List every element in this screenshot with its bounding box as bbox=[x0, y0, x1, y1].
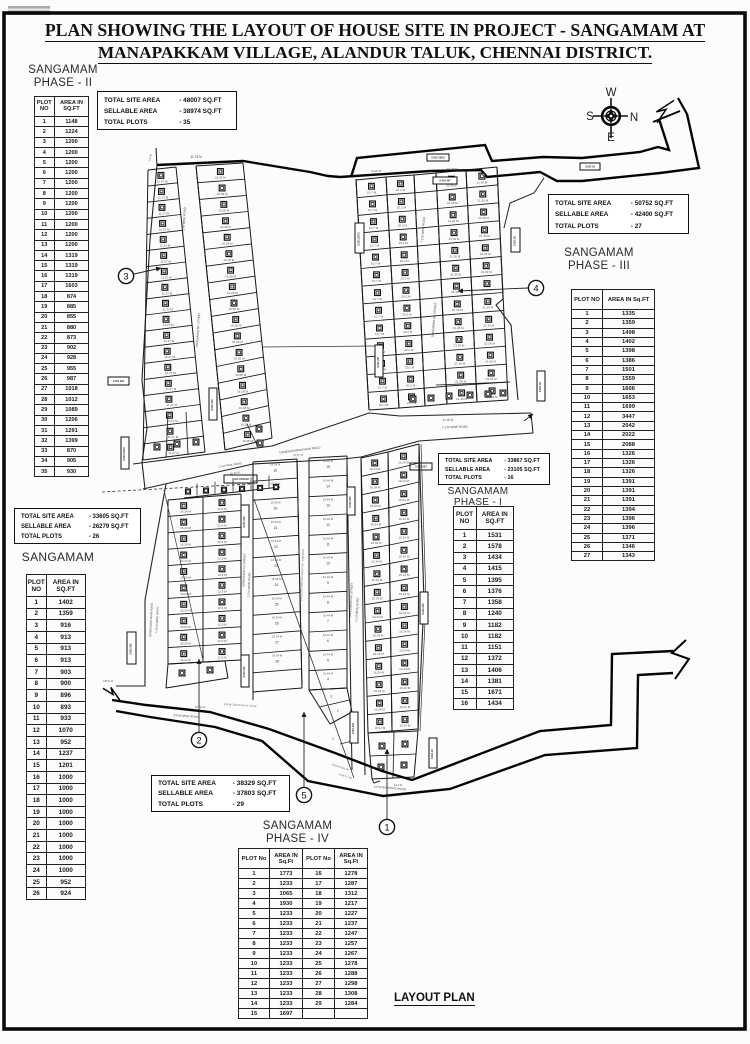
svg-text:11.27 M: 11.27 M bbox=[157, 180, 168, 184]
svg-text:16.34 M: 16.34 M bbox=[370, 504, 381, 508]
svg-text:16.34 M: 16.34 M bbox=[374, 689, 385, 693]
svg-text:16.24 M: 16.24 M bbox=[180, 576, 191, 580]
svg-text:16.44 M: 16.44 M bbox=[323, 536, 334, 540]
svg-text:11.27 M: 11.27 M bbox=[164, 355, 175, 359]
svg-text:12.9 M: 12.9 M bbox=[217, 573, 227, 577]
svg-text:16.34 M: 16.34 M bbox=[374, 707, 385, 711]
svg-text:11.27 M: 11.27 M bbox=[162, 291, 173, 295]
svg-text:4: 4 bbox=[327, 678, 329, 682]
svg-text:16.34 M: 16.34 M bbox=[371, 560, 382, 564]
svg-text:16.24 M: 16.24 M bbox=[400, 724, 411, 728]
svg-text:5.84 M 7.92 M SPLAY 7.91 M: 5.84 M 7.92 M SPLAY 7.91 M bbox=[224, 703, 257, 708]
svg-text:16.24 M: 16.24 M bbox=[399, 667, 410, 671]
svg-text:SANGAMAM 1st STREET: SANGAMAM 1st STREET bbox=[241, 553, 246, 587]
svg-text:11.27 M: 11.27 M bbox=[162, 307, 173, 311]
svg-text:20: 20 bbox=[274, 507, 278, 511]
svg-text:S.NO.264: S.NO.264 bbox=[113, 379, 125, 383]
svg-text:16.28 M: 16.28 M bbox=[218, 209, 229, 213]
svg-text:E: E bbox=[607, 132, 615, 144]
svg-text:16.44 M: 16.44 M bbox=[323, 652, 334, 656]
svg-text:16.34 M: 16.34 M bbox=[270, 482, 281, 486]
svg-text:10.7 M: 10.7 M bbox=[367, 190, 377, 194]
svg-text:3: 3 bbox=[123, 271, 128, 282]
svg-text:21.36 M: 21.36 M bbox=[448, 219, 459, 223]
svg-text:S.NO.263: S.NO.263 bbox=[242, 516, 246, 528]
svg-text:11.27 M: 11.27 M bbox=[164, 339, 175, 343]
svg-text:20.2 M: 20.2 M bbox=[396, 188, 406, 192]
svg-text:EXECUTED VIDE DOCUMENT NO - 13: EXECUTED VIDE DOCUMENT NO - 1366 03 02 bbox=[300, 548, 305, 601]
svg-text:10.7 M: 10.7 M bbox=[378, 385, 388, 389]
svg-text:16.34 M: 16.34 M bbox=[373, 670, 384, 674]
svg-text:1: 1 bbox=[384, 822, 389, 833]
svg-text:16.24 M: 16.24 M bbox=[180, 608, 191, 612]
svg-text:20.2 M: 20.2 M bbox=[399, 241, 409, 245]
svg-text:S.NO.267/1: S.NO.267/1 bbox=[357, 232, 361, 246]
svg-text:SANGAMAM 2nd STREET: SANGAMAM 2nd STREET bbox=[348, 582, 354, 617]
svg-text:S.NO.263: S.NO.263 bbox=[242, 666, 246, 678]
svg-text:7.2 M WIDE ROAD: 7.2 M WIDE ROAD bbox=[354, 597, 359, 622]
svg-text:21.36 M: 21.36 M bbox=[477, 198, 488, 202]
svg-text:16.24 M: 16.24 M bbox=[398, 460, 409, 464]
svg-text:S.NO 263: S.NO 263 bbox=[415, 465, 427, 469]
svg-text:12.9 M: 12.9 M bbox=[217, 523, 227, 527]
svg-text:SANGAMAM 4th STREET: SANGAMAM 4th STREET bbox=[430, 302, 437, 338]
svg-text:11.27 M: 11.27 M bbox=[159, 227, 170, 231]
svg-text:14: 14 bbox=[326, 484, 330, 488]
svg-text:S.NO.262: S.NO.262 bbox=[129, 643, 133, 655]
svg-text:12.9 M: 12.9 M bbox=[217, 639, 227, 643]
svg-text:16.24 M: 16.24 M bbox=[399, 648, 410, 652]
svg-text:16.34 M: 16.34 M bbox=[373, 633, 384, 637]
svg-text:11.27 M: 11.27 M bbox=[160, 243, 171, 247]
svg-text:S.NO.262/3: S.NO.262/3 bbox=[122, 447, 126, 461]
svg-text:S.NO.263: S.NO.263 bbox=[421, 603, 425, 615]
svg-text:16.24 M: 16.24 M bbox=[180, 526, 191, 530]
svg-text:16.34 M: 16.34 M bbox=[371, 541, 382, 545]
svg-text:21.36 M: 21.36 M bbox=[483, 324, 494, 328]
svg-text:12: 12 bbox=[326, 523, 330, 527]
svg-text:21.36 M: 21.36 M bbox=[449, 237, 460, 241]
svg-text:5: 5 bbox=[301, 790, 306, 801]
svg-text:16.28 M: 16.28 M bbox=[230, 324, 241, 328]
svg-text:16.44 M: 16.44 M bbox=[323, 672, 334, 676]
svg-text:S.NO 267: S.NO 267 bbox=[439, 179, 451, 183]
svg-text:16.28 M: 16.28 M bbox=[234, 357, 245, 361]
svg-text:20.2 M: 20.2 M bbox=[401, 277, 411, 281]
svg-text:21.36 M: 21.36 M bbox=[449, 255, 460, 259]
svg-text:21.36 M: 21.36 M bbox=[481, 270, 492, 274]
svg-text:S.NO.26: S.NO.26 bbox=[538, 382, 542, 393]
svg-text:21.36 M: 21.36 M bbox=[456, 397, 467, 401]
svg-text:10.7 M: 10.7 M bbox=[373, 297, 383, 301]
svg-text:12.9 M: 12.9 M bbox=[217, 623, 227, 627]
svg-text:3: 3 bbox=[330, 695, 332, 699]
svg-text:21.36 M: 21.36 M bbox=[453, 326, 464, 330]
svg-text:21.36 M: 21.36 M bbox=[485, 359, 496, 363]
svg-text:16.24 M: 16.24 M bbox=[399, 611, 410, 615]
svg-text:21: 21 bbox=[274, 526, 278, 530]
svg-text:21.36 M: 21.36 M bbox=[454, 344, 465, 348]
svg-text:16.28 M: 16.28 M bbox=[220, 225, 231, 229]
svg-text:1: 1 bbox=[332, 737, 334, 741]
svg-text:10.7 M: 10.7 M bbox=[369, 226, 379, 230]
svg-text:21.36 M: 21.36 M bbox=[486, 377, 497, 381]
svg-text:16.28 M: 16.28 M bbox=[215, 176, 226, 180]
svg-text:10.52 M SPLAY: 10.52 M SPLAY bbox=[331, 762, 350, 772]
svg-text:16.34 M: 16.34 M bbox=[370, 523, 381, 527]
svg-text:16.34 M: 16.34 M bbox=[372, 597, 383, 601]
svg-text:16.24 M: 16.24 M bbox=[180, 641, 191, 645]
svg-text:SANGAMAM MAIN ROAD: SANGAMAM MAIN ROAD bbox=[148, 603, 154, 637]
svg-text:11.27 M: 11.27 M bbox=[166, 403, 177, 407]
svg-text:16.44 M: 16.44 M bbox=[323, 633, 334, 637]
svg-text:16.34 M: 16.34 M bbox=[372, 615, 383, 619]
svg-text:16.44 M: 16.44 M bbox=[323, 517, 334, 521]
svg-text:73.20 M: 73.20 M bbox=[371, 169, 382, 173]
svg-text:16.28 M: 16.28 M bbox=[240, 422, 251, 426]
svg-text:21.36 M: 21.36 M bbox=[455, 379, 466, 383]
svg-text:16.28 M: 16.28 M bbox=[242, 439, 253, 443]
svg-text:7.2 M WIDE ROAD: 7.2 M WIDE ROAD bbox=[247, 573, 252, 598]
svg-text:10: 10 bbox=[326, 562, 330, 566]
svg-text:16.24 M: 16.24 M bbox=[398, 498, 409, 502]
svg-text:20.2 M: 20.2 M bbox=[398, 223, 408, 227]
svg-text:12.9 M: 12.9 M bbox=[217, 540, 227, 544]
svg-text:16.28 M: 16.28 M bbox=[235, 373, 246, 377]
svg-text:11.27 M: 11.27 M bbox=[165, 371, 176, 375]
svg-text:16.24 M: 16.24 M bbox=[180, 510, 191, 514]
svg-text:S.NO.263: S.NO.263 bbox=[348, 496, 352, 508]
svg-text:21.36 M: 21.36 M bbox=[450, 272, 461, 276]
svg-text:S.NO.263: S.NO.263 bbox=[210, 399, 214, 411]
svg-text:16.28 M: 16.28 M bbox=[239, 406, 250, 410]
svg-text:20.2 M: 20.2 M bbox=[404, 348, 414, 352]
svg-text:16.24 M: 16.24 M bbox=[398, 536, 409, 540]
svg-text:7.2 M WIDE ROAD: 7.2 M WIDE ROAD bbox=[420, 216, 426, 243]
svg-text:W: W bbox=[606, 87, 617, 99]
svg-text:21.36 M: 21.36 M bbox=[480, 252, 491, 256]
svg-text:3.0 M: 3.0 M bbox=[147, 153, 153, 161]
svg-text:12.9 M: 12.9 M bbox=[217, 507, 227, 511]
svg-text:20.2 M: 20.2 M bbox=[401, 295, 411, 299]
svg-text:16.44 M: 16.44 M bbox=[323, 498, 334, 502]
svg-text:11.27 M: 11.27 M bbox=[166, 387, 177, 391]
svg-text:S.NO.267: S.NO.267 bbox=[376, 356, 380, 368]
svg-text:16.34 M: 16.34 M bbox=[272, 654, 283, 658]
svg-text:16.44 M: 16.44 M bbox=[323, 575, 334, 579]
svg-text:16.44 M: 16.44 M bbox=[323, 594, 334, 598]
svg-text:S.NO.26: S.NO.26 bbox=[513, 236, 517, 247]
svg-text:16.28 M: 16.28 M bbox=[223, 258, 234, 262]
svg-text:16.34 M: 16.34 M bbox=[272, 635, 283, 639]
svg-text:34.28 M: 34.28 M bbox=[447, 167, 458, 171]
svg-text:20.2 M: 20.2 M bbox=[402, 312, 412, 316]
svg-text:S: S bbox=[586, 111, 594, 123]
svg-text:12.9 M: 12.9 M bbox=[217, 656, 227, 660]
svg-text:S.NO 266/2: S.NO 266/2 bbox=[431, 156, 445, 160]
svg-text:14 M 21 CM: 14 M 21 CM bbox=[338, 773, 352, 780]
svg-text:10.7 M: 10.7 M bbox=[379, 403, 389, 407]
svg-text:10.7 M: 10.7 M bbox=[374, 315, 384, 319]
svg-text:20.2 M: 20.2 M bbox=[397, 206, 407, 210]
svg-text:10.7 M: 10.7 M bbox=[372, 279, 382, 283]
svg-text:16.34 M: 16.34 M bbox=[371, 578, 382, 582]
svg-text:13: 13 bbox=[326, 504, 330, 508]
svg-text:8: 8 bbox=[327, 600, 329, 604]
svg-text:10.7 M: 10.7 M bbox=[375, 332, 385, 336]
svg-text:7.2 M WIDE ROAD: 7.2 M WIDE ROAD bbox=[181, 206, 187, 233]
svg-text:S.NO.263: S.NO.263 bbox=[351, 722, 355, 734]
svg-text:16.28 M: 16.28 M bbox=[232, 340, 243, 344]
svg-text:16.34 M: 16.34 M bbox=[370, 486, 381, 490]
svg-text:5: 5 bbox=[327, 658, 329, 662]
svg-text:16.34 M: 16.34 M bbox=[271, 520, 282, 524]
svg-text:16.24 M: 16.24 M bbox=[398, 479, 409, 483]
svg-text:16.34 M: 16.34 M bbox=[374, 726, 385, 730]
svg-text:20.2 M: 20.2 M bbox=[400, 259, 410, 263]
svg-text:4: 4 bbox=[533, 283, 538, 294]
svg-text:16.28 M: 16.28 M bbox=[222, 242, 233, 246]
svg-text:16.24 M: 16.24 M bbox=[180, 625, 191, 629]
svg-text:10.7 M: 10.7 M bbox=[371, 261, 381, 265]
svg-text:10.7 M: 10.7 M bbox=[370, 244, 380, 248]
svg-text:21.36 M: 21.36 M bbox=[447, 201, 458, 205]
svg-text:16: 16 bbox=[273, 469, 277, 473]
svg-text:7: 7 bbox=[327, 620, 329, 624]
svg-text:16.24 M: 16.24 M bbox=[180, 543, 191, 547]
svg-text:16.44 M: 16.44 M bbox=[323, 478, 334, 482]
svg-text:16.34 M: 16.34 M bbox=[272, 616, 283, 620]
svg-text:20.2 M: 20.2 M bbox=[403, 330, 413, 334]
svg-text:21.36 M: 21.36 M bbox=[476, 180, 487, 184]
svg-text:16.28 M: 16.28 M bbox=[217, 192, 228, 196]
svg-text:11.27 M: 11.27 M bbox=[168, 435, 179, 439]
svg-text:16.24 M: 16.24 M bbox=[398, 517, 409, 521]
svg-text:16.24 M: 16.24 M bbox=[180, 559, 191, 563]
svg-text:47.05 M: 47.05 M bbox=[442, 418, 453, 422]
svg-text:8.0 M WIDE ROAD: 8.0 M WIDE ROAD bbox=[174, 713, 199, 719]
svg-text:16.28 M: 16.28 M bbox=[225, 274, 236, 278]
svg-text:11.27 M: 11.27 M bbox=[168, 451, 179, 455]
svg-text:6: 6 bbox=[327, 639, 329, 643]
svg-text:9: 9 bbox=[327, 581, 329, 585]
svg-text:20.2 M: 20.2 M bbox=[405, 366, 415, 370]
svg-text:10.7 M: 10.7 M bbox=[368, 208, 378, 212]
svg-text:16.44 M: 16.44 M bbox=[323, 556, 334, 560]
svg-text:S.NO 26: S.NO 26 bbox=[585, 165, 596, 169]
svg-text:28: 28 bbox=[275, 660, 279, 664]
svg-text:16.24 M: 16.24 M bbox=[399, 554, 410, 558]
svg-text:16.34 M: 16.34 M bbox=[369, 467, 380, 471]
svg-text:16.34 M: 16.34 M bbox=[270, 463, 281, 467]
svg-text:20.2 M: 20.2 M bbox=[406, 383, 416, 387]
svg-text:11.27 M: 11.27 M bbox=[167, 419, 178, 423]
svg-text:31.78 M: 31.78 M bbox=[190, 155, 202, 159]
svg-text:16.24 M: 16.24 M bbox=[399, 573, 410, 577]
svg-text:16.24 M: 16.24 M bbox=[399, 630, 410, 634]
svg-text:16.34 M: 16.34 M bbox=[373, 652, 384, 656]
svg-text:36.Rp M: 36.Rp M bbox=[195, 705, 206, 710]
svg-text:16.34 M: 16.34 M bbox=[270, 501, 281, 505]
svg-text:16.28 M: 16.28 M bbox=[227, 291, 238, 295]
svg-text:S.NO.26: S.NO.26 bbox=[430, 749, 434, 760]
svg-text:26: 26 bbox=[275, 622, 279, 626]
svg-text:16.24 M: 16.24 M bbox=[399, 705, 410, 709]
svg-text:22: 22 bbox=[274, 545, 278, 549]
svg-text:21.36 M: 21.36 M bbox=[478, 216, 489, 220]
svg-text:7.2 M WIDE ROAD: 7.2 M WIDE ROAD bbox=[442, 425, 469, 430]
svg-text:11.27 M: 11.27 M bbox=[163, 323, 174, 327]
svg-text:7.30 M WIDE ROAD: 7.30 M WIDE ROAD bbox=[154, 607, 159, 634]
svg-text:11: 11 bbox=[326, 542, 330, 546]
svg-text:21.36 M: 21.36 M bbox=[479, 234, 490, 238]
svg-text:21.36 M: 21.36 M bbox=[482, 306, 493, 310]
svg-text:21.36 M: 21.36 M bbox=[484, 341, 495, 345]
svg-text:11.27 M: 11.27 M bbox=[160, 259, 171, 263]
svg-text:16.24 M: 16.24 M bbox=[399, 686, 410, 690]
svg-text:105.01 M: 105.01 M bbox=[103, 680, 113, 683]
svg-text:16.34 M: 16.34 M bbox=[271, 539, 282, 543]
svg-text:16.24 M: 16.24 M bbox=[180, 592, 191, 596]
svg-text:16.44 M: 16.44 M bbox=[323, 459, 334, 463]
svg-text:12.9 M: 12.9 M bbox=[217, 590, 227, 594]
svg-text:16.44 M: 16.44 M bbox=[323, 614, 334, 618]
svg-text:11.27 M: 11.27 M bbox=[158, 211, 169, 215]
svg-text:11.27 M: 11.27 M bbox=[161, 275, 172, 279]
svg-text:15: 15 bbox=[326, 465, 330, 469]
svg-text:32.37 M: 32.37 M bbox=[293, 453, 304, 458]
svg-text:21.36 M: 21.36 M bbox=[454, 362, 465, 366]
svg-text:S.NO 263/1B2: S.NO 263/1B2 bbox=[232, 477, 249, 481]
svg-text:11.27 M: 11.27 M bbox=[158, 196, 169, 200]
svg-text:25: 25 bbox=[275, 602, 279, 606]
svg-text:16.34 M: 16.34 M bbox=[271, 577, 282, 581]
svg-text:12.9 M: 12.9 M bbox=[217, 556, 227, 560]
svg-text:12.9 M: 12.9 M bbox=[217, 606, 227, 610]
svg-text:2: 2 bbox=[337, 709, 339, 713]
svg-text:24: 24 bbox=[275, 583, 279, 587]
svg-text:16.24 M: 16.24 M bbox=[180, 658, 191, 662]
svg-text:16.28 M: 16.28 M bbox=[229, 307, 240, 311]
svg-text:19: 19 bbox=[273, 488, 277, 492]
svg-text:N: N bbox=[630, 112, 638, 124]
svg-text:27: 27 bbox=[275, 641, 279, 645]
svg-text:SANGAMAM 5th STREET: SANGAMAM 5th STREET bbox=[195, 312, 201, 348]
svg-text:21.36 M: 21.36 M bbox=[452, 308, 463, 312]
svg-text:2: 2 bbox=[196, 735, 201, 746]
svg-text:16.34 M: 16.34 M bbox=[272, 596, 283, 600]
svg-text:16.24 M: 16.24 M bbox=[399, 592, 410, 596]
svg-text:16.28 M: 16.28 M bbox=[237, 390, 248, 394]
